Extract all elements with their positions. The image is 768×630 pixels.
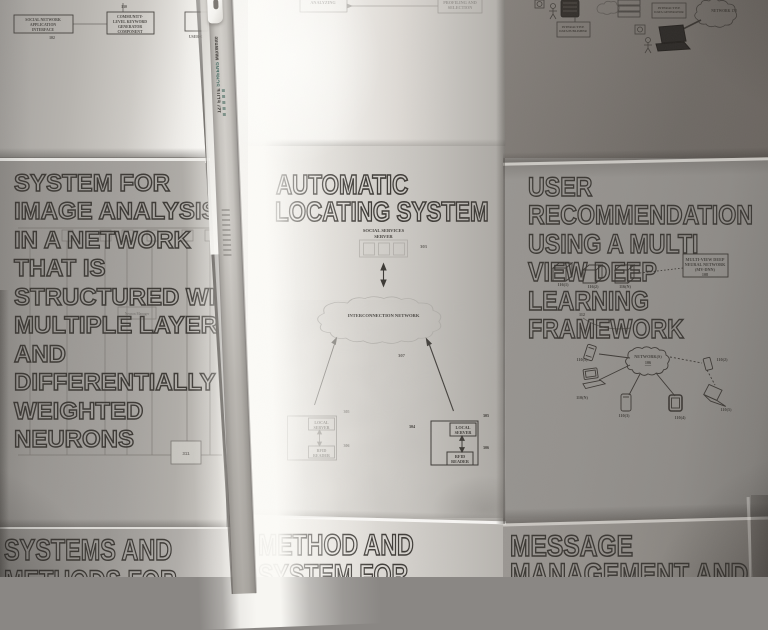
svg-text:INTERFACE: INTERFACE xyxy=(32,28,55,32)
svg-text:NETWORK 178: NETWORK 178 xyxy=(711,9,737,13)
svg-text:DATA PUBLISHER: DATA PUBLISHER xyxy=(559,29,587,33)
svg-text:SELECTION: SELECTION xyxy=(448,5,472,10)
svg-text:LEVEL KEYWORD: LEVEL KEYWORD xyxy=(113,20,147,24)
svg-text:102: 102 xyxy=(49,36,55,40)
svg-text:SOCIAL NETWORK: SOCIAL NETWORK xyxy=(25,18,61,22)
svg-text:COMMUNITY-: COMMUNITY- xyxy=(117,15,144,19)
svg-text:DATA GENERATOR: DATA GENERATOR xyxy=(654,10,684,14)
svg-text:COMPONENT: COMPONENT xyxy=(117,30,143,34)
svg-text:GENERATOR: GENERATOR xyxy=(118,25,142,29)
svg-text:APPLICATION: APPLICATION xyxy=(30,23,57,27)
svg-text:130: 130 xyxy=(121,5,127,9)
